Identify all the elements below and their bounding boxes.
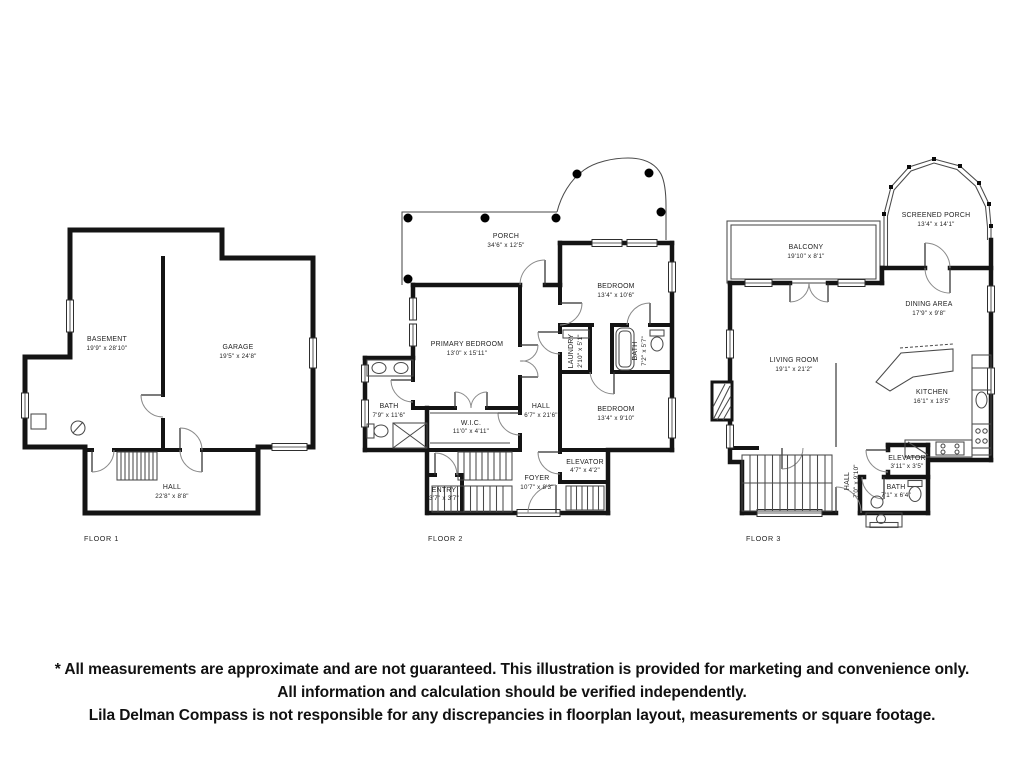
room-dims-entry: 3'7" x 3'7" (429, 495, 459, 502)
room-dims-elevator-2: 4'7" x 4'2" (570, 467, 600, 474)
floor1-label: FLOOR 1 (84, 534, 119, 543)
room-dims-garage: 19'5" x 24'8" (219, 353, 256, 360)
floor1-windows (22, 300, 317, 451)
room-label-hall-3: HALL (844, 472, 851, 490)
room-dims-bedroom1: 13'4" x 10'6" (597, 292, 634, 299)
room-label-basement: BASEMENT (87, 336, 127, 343)
disclaimer-line-1: * All measurements are approximate and a… (0, 658, 1024, 681)
room-dims-bath1: 7'9" x 11'6" (372, 412, 405, 419)
room-dims-balcony: 19'10" x 8'1" (787, 253, 824, 260)
room-label-hall-1: HALL (163, 484, 181, 491)
floor1-doors (92, 395, 202, 472)
floor1-plan: BASEMENT 19'9" x 28'10" GARAGE 19'5" x 2… (22, 230, 317, 543)
disclaimer-line-2: All information and calculation should b… (0, 681, 1024, 704)
floor3-stairs (742, 363, 836, 511)
floor1-fixtures (31, 414, 85, 435)
room-dims-hall-2: 6'7" x 21'6" (524, 412, 558, 419)
room-dims-screened-porch: 13'4" x 14'1" (917, 221, 954, 228)
room-label-elevator-3: ELEVATOR (888, 455, 926, 462)
room-dims-wic: 11'0" x 4'11" (453, 428, 489, 435)
room-dims-hall-3: 7'0" x 9'10" (853, 464, 860, 498)
room-dims-hall-1: 22'8" x 8'8" (155, 493, 189, 500)
room-dims-bath-3: 7'1" x 6'4" (881, 492, 911, 499)
room-label-porch: PORCH (493, 233, 519, 240)
floor3-plan: SCREENED PORCH 13'4" x 14'1" BALCONY 19'… (712, 157, 995, 543)
floor3-label: FLOOR 3 (746, 534, 781, 543)
floor2-porch-railing (402, 158, 666, 285)
room-dims-kitchen: 16'1" x 13'5" (913, 398, 950, 405)
room-label-living: LIVING ROOM (770, 357, 819, 364)
room-label-bedroom2: BEDROOM (597, 406, 634, 413)
room-label-bath-3: BATH (887, 484, 906, 491)
floor3-balcony-railing (727, 221, 880, 283)
room-label-dining: DINING AREA (905, 301, 952, 308)
floorplan-canvas: BASEMENT 19'9" x 28'10" GARAGE 19'5" x 2… (0, 0, 1024, 768)
room-dims-foyer: 10'7" x 8'3" (520, 484, 554, 491)
floor2-plan: PORCH 34'6" x 12'5" BEDROOM 13'4" x 10'6… (362, 158, 676, 543)
room-label-entry: ENTRY (432, 487, 457, 494)
floor3-fireplace (712, 382, 732, 420)
room-dims-porch: 34'6" x 12'5" (487, 242, 524, 249)
floor1-walls (25, 230, 313, 513)
room-label-foyer: FOYER (525, 475, 550, 482)
room-label-garage: GARAGE (223, 344, 254, 351)
room-label-bath1: BATH (380, 403, 399, 410)
room-dims-elevator-3: 3'11" x 3'5" (890, 463, 923, 470)
room-label-hall-2: HALL (532, 403, 550, 410)
disclaimer-line-3: Lila Delman Compass is not responsible f… (0, 704, 1024, 727)
room-label-balcony: BALCONY (789, 244, 824, 251)
room-dims-bedroom2: 13'4" x 9'10" (597, 415, 634, 422)
room-label-kitchen: KITCHEN (916, 389, 948, 396)
room-dims-dining: 17'9" x 9'8" (912, 310, 946, 317)
room-dims-basement: 19'9" x 28'10" (87, 345, 128, 352)
room-label-bedroom1: BEDROOM (597, 283, 634, 290)
floor1-stairs (117, 452, 157, 480)
floor2-label: FLOOR 2 (428, 534, 463, 543)
room-dims-laundry: 2'10" x 5'1" (577, 334, 584, 368)
room-label-bath2: BATH (632, 342, 639, 361)
room-label-laundry: LAUNDRY (568, 334, 575, 369)
room-label-elevator-2: ELEVATOR (566, 459, 604, 466)
room-dims-bath2: 7'2" x 5'7" (641, 336, 648, 366)
room-dims-living: 19'1" x 21'2" (775, 366, 812, 373)
disclaimer-block: * All measurements are approximate and a… (0, 658, 1024, 727)
room-label-wic: W.I.C. (461, 420, 481, 427)
floorplan-page: BASEMENT 19'9" x 28'10" GARAGE 19'5" x 2… (0, 0, 1024, 768)
room-dims-primary: 13'0" x 15'11" (447, 350, 487, 357)
room-label-primary: PRIMARY BEDROOM (431, 341, 503, 348)
room-label-screened-porch: SCREENED PORCH (902, 212, 971, 219)
